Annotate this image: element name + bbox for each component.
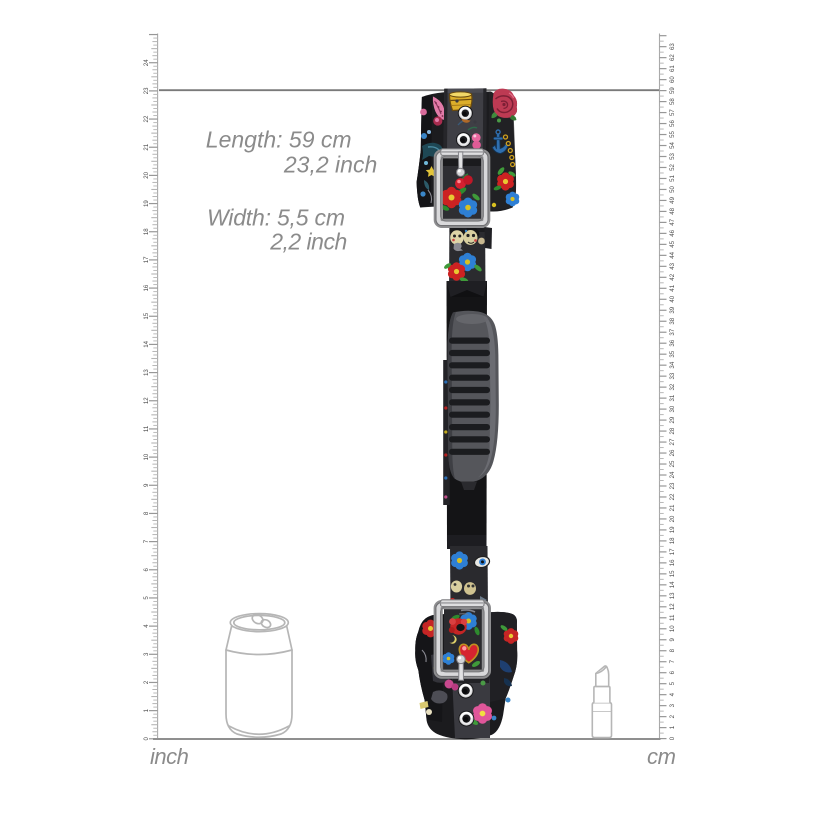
svg-text:13: 13 xyxy=(669,592,676,599)
svg-text:cm: cm xyxy=(647,744,676,769)
svg-text:21: 21 xyxy=(669,504,676,511)
svg-text:48: 48 xyxy=(669,207,676,214)
svg-text:46: 46 xyxy=(669,229,676,236)
svg-text:14: 14 xyxy=(143,340,150,347)
svg-text:32: 32 xyxy=(669,383,676,390)
svg-text:16: 16 xyxy=(143,284,150,291)
svg-text:27: 27 xyxy=(669,438,676,445)
svg-text:44: 44 xyxy=(669,251,676,258)
svg-text:15: 15 xyxy=(143,312,150,319)
svg-text:47: 47 xyxy=(669,218,676,225)
svg-text:57: 57 xyxy=(669,109,676,116)
svg-text:39: 39 xyxy=(669,306,676,313)
svg-text:36: 36 xyxy=(669,339,676,346)
svg-text:62: 62 xyxy=(669,54,676,61)
svg-text:11: 11 xyxy=(669,614,676,621)
svg-text:24: 24 xyxy=(143,59,150,66)
svg-text:20: 20 xyxy=(143,171,150,178)
svg-text:2,2 inch: 2,2 inch xyxy=(269,229,347,255)
svg-text:37: 37 xyxy=(669,328,676,335)
svg-text:63: 63 xyxy=(669,43,676,50)
svg-text:17: 17 xyxy=(669,548,676,555)
svg-text:11: 11 xyxy=(143,425,150,432)
svg-text:24: 24 xyxy=(669,471,676,478)
svg-text:22: 22 xyxy=(143,115,150,122)
svg-text:38: 38 xyxy=(669,317,676,324)
svg-text:34: 34 xyxy=(669,361,676,368)
svg-text:18: 18 xyxy=(669,537,676,544)
svg-text:30: 30 xyxy=(669,405,676,412)
svg-text:22: 22 xyxy=(669,493,676,500)
svg-text:20: 20 xyxy=(669,515,676,522)
svg-text:18: 18 xyxy=(143,228,150,235)
svg-text:51: 51 xyxy=(669,174,676,181)
svg-text:28: 28 xyxy=(669,427,676,434)
svg-text:59: 59 xyxy=(669,87,676,94)
svg-text:21: 21 xyxy=(143,143,150,150)
svg-text:15: 15 xyxy=(669,570,676,577)
svg-text:23,2 inch: 23,2 inch xyxy=(283,151,377,177)
svg-text:50: 50 xyxy=(669,185,676,192)
svg-text:19: 19 xyxy=(143,200,150,207)
svg-text:58: 58 xyxy=(669,98,676,105)
svg-text:41: 41 xyxy=(669,284,676,291)
svg-text:13: 13 xyxy=(143,369,150,376)
svg-text:55: 55 xyxy=(669,131,676,138)
svg-text:10: 10 xyxy=(669,625,676,632)
svg-text:43: 43 xyxy=(669,262,676,269)
svg-text:14: 14 xyxy=(669,581,676,588)
svg-text:54: 54 xyxy=(669,142,676,149)
svg-text:52: 52 xyxy=(669,163,676,170)
svg-text:33: 33 xyxy=(669,372,676,379)
svg-text:53: 53 xyxy=(669,153,676,160)
svg-text:inch: inch xyxy=(150,744,189,769)
svg-text:61: 61 xyxy=(669,65,676,72)
svg-text:40: 40 xyxy=(669,295,676,302)
svg-text:12: 12 xyxy=(143,397,150,404)
svg-text:60: 60 xyxy=(669,76,676,83)
svg-text:Length: 59 cm: Length: 59 cm xyxy=(206,127,352,153)
svg-text:26: 26 xyxy=(669,449,676,456)
svg-text:23: 23 xyxy=(143,87,150,94)
svg-text:29: 29 xyxy=(669,416,676,423)
svg-text:16: 16 xyxy=(669,559,676,566)
svg-text:23: 23 xyxy=(669,482,676,489)
svg-text:25: 25 xyxy=(669,460,676,467)
svg-text:31: 31 xyxy=(669,394,676,401)
svg-text:17: 17 xyxy=(143,256,150,263)
svg-text:Width: 5,5 cm: Width: 5,5 cm xyxy=(207,205,345,231)
svg-text:49: 49 xyxy=(669,196,676,203)
svg-text:45: 45 xyxy=(669,240,676,247)
svg-text:56: 56 xyxy=(669,120,676,127)
svg-text:35: 35 xyxy=(669,350,676,357)
svg-text:19: 19 xyxy=(669,526,676,533)
svg-text:10: 10 xyxy=(143,453,150,460)
svg-text:12: 12 xyxy=(669,603,676,610)
svg-text:42: 42 xyxy=(669,273,676,280)
